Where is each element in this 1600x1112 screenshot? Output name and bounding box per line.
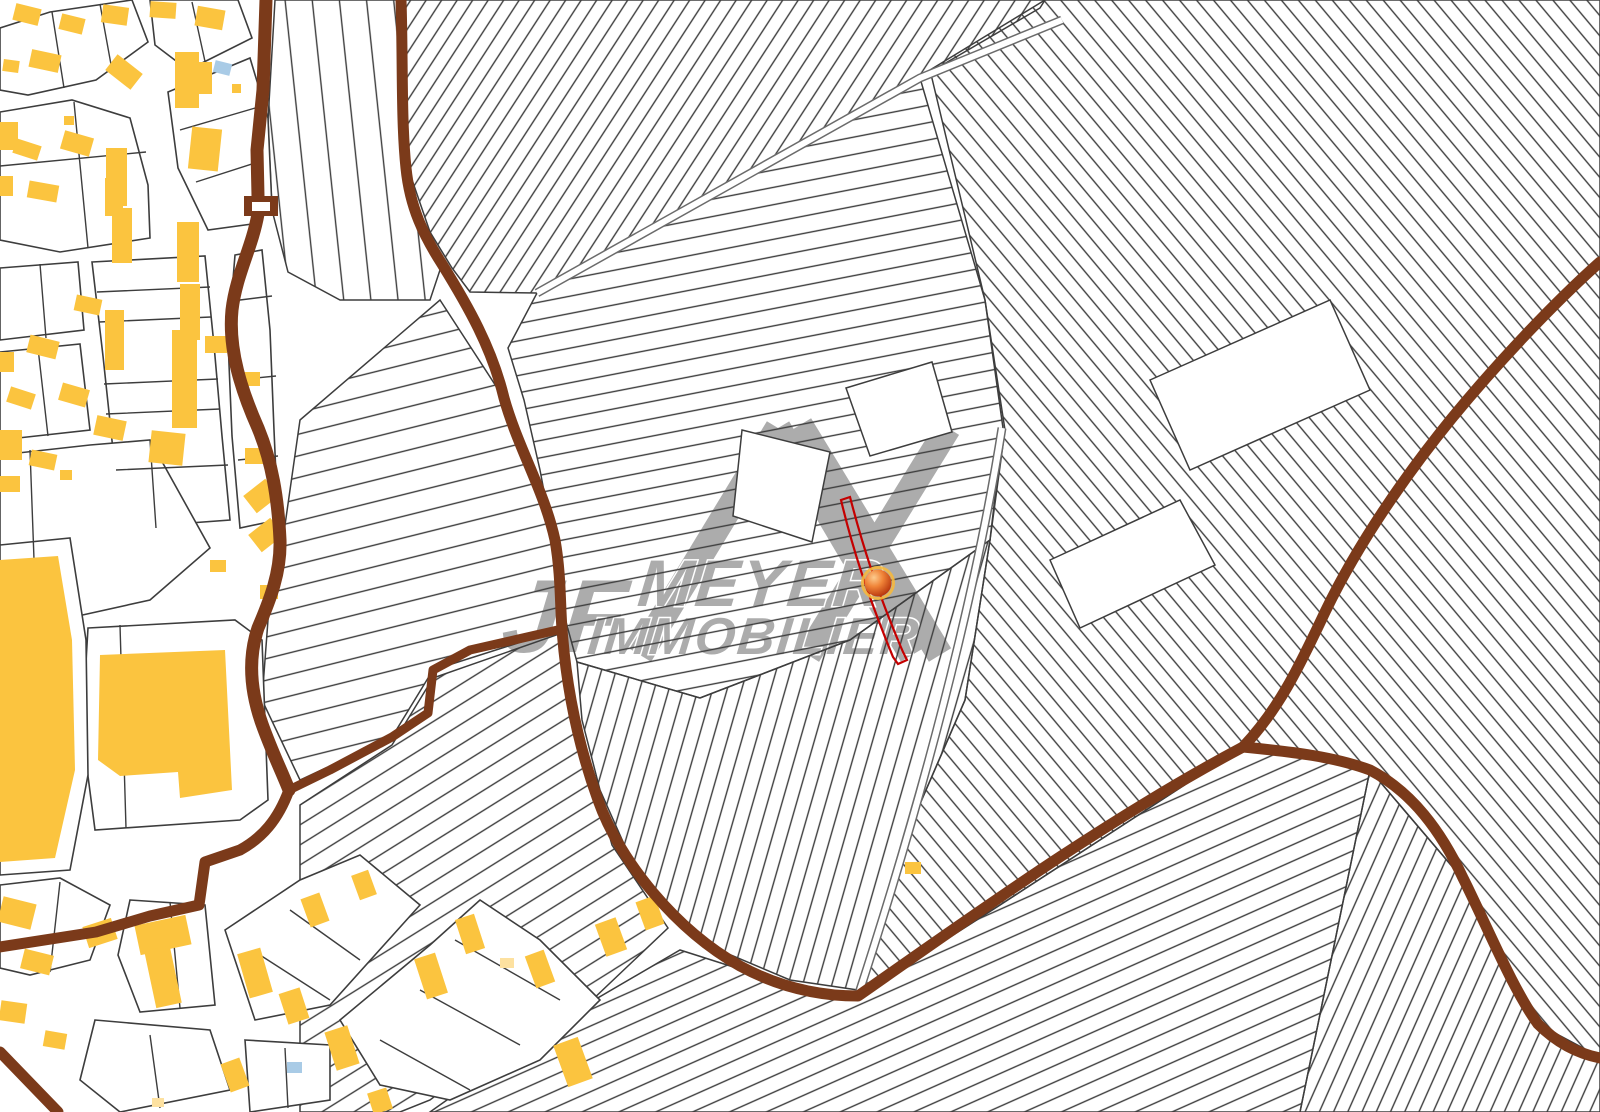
building <box>177 222 199 282</box>
marker-sphere[interactable] <box>865 570 892 597</box>
building <box>149 1 176 19</box>
building <box>148 430 185 465</box>
building <box>101 4 129 25</box>
building <box>172 330 197 428</box>
building <box>500 958 514 968</box>
building <box>188 127 222 172</box>
building <box>210 560 226 572</box>
building <box>105 310 124 370</box>
building <box>232 84 241 93</box>
building <box>0 176 13 196</box>
urban-block <box>0 262 84 340</box>
building <box>0 1000 27 1023</box>
cadastral-map[interactable]: JF MEYER IMMOBILIER <box>0 0 1600 1112</box>
location-marker-pin[interactable] <box>863 568 894 599</box>
building <box>106 148 127 206</box>
building <box>205 336 227 353</box>
building-annex <box>287 1062 302 1073</box>
building <box>0 476 20 492</box>
building <box>0 352 14 372</box>
cadastral-map-viewport[interactable]: JF MEYER IMMOBILIER <box>0 0 1600 1112</box>
building <box>60 470 72 480</box>
building <box>152 1098 164 1107</box>
building <box>112 208 132 263</box>
building <box>905 862 921 874</box>
building <box>175 52 199 108</box>
building <box>64 116 74 125</box>
building <box>2 59 20 73</box>
large-building <box>0 556 75 862</box>
building <box>0 430 22 460</box>
